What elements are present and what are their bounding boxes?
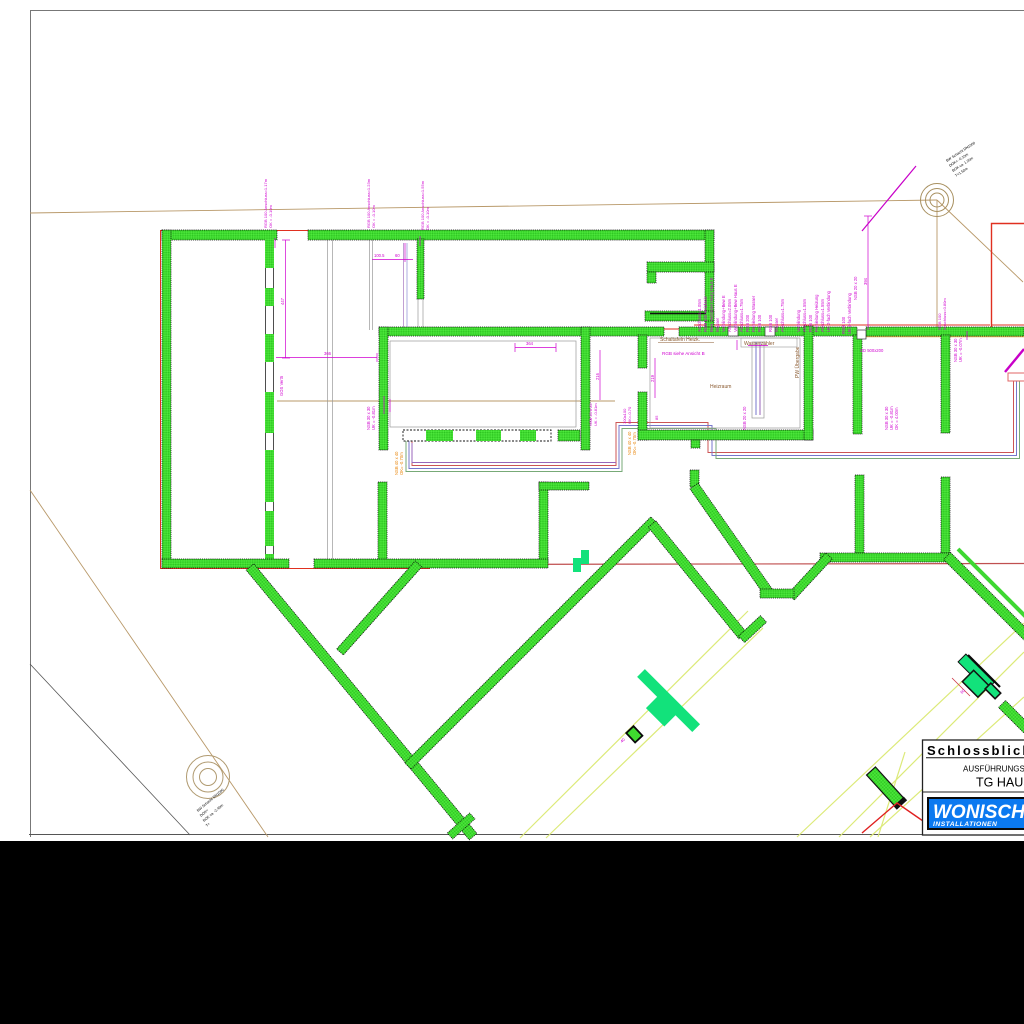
svg-text:NSB 20 x 20: NSB 20 x 20 — [742, 406, 747, 430]
svg-text:Anschluss=1.75m: Anschluss=1.75m — [739, 298, 744, 332]
svg-text:RGB 100: RGB 100 — [757, 314, 762, 332]
svg-text:AUSFÜHRUNGSPLAN: AUSFÜHRUNGSPLAN — [963, 765, 1024, 774]
svg-text:219: 219 — [650, 374, 655, 382]
svg-text:TG HAUS B: TG HAUS B — [976, 776, 1024, 790]
svg-text:Heizraum: Heizraum — [710, 384, 731, 390]
svg-text:Anschluss=1.55m: Anschluss=1.55m — [802, 298, 807, 332]
svg-text:Wasser: Wasser — [715, 317, 720, 332]
svg-text:Wasser: Wasser — [774, 317, 779, 332]
svg-text:WONISCH: WONISCH — [933, 802, 1024, 823]
svg-text:RGB siehe Ansicht B: RGB siehe Ansicht B — [662, 351, 705, 356]
svg-text:DD 500x200: DD 500x200 — [860, 348, 884, 353]
svg-text:UK = -0.81m: UK = -0.81m — [593, 403, 598, 426]
svg-text:NSB 20 x 20: NSB 20 x 20 — [853, 276, 858, 300]
svg-text:RGB 100: RGB 100 — [808, 314, 813, 332]
svg-text:Fernleitung Heizung: Fernleitung Heizung — [814, 294, 819, 332]
svg-text:PW Übergabe: PW Übergabe — [794, 346, 801, 378]
svg-text:100.5: 100.5 — [374, 253, 385, 258]
svg-text:OK= -0.70m: OK= -0.70m — [399, 452, 404, 475]
svg-text:OK=-0.70: OK=-0.70 — [627, 406, 632, 424]
svg-text:364: 364 — [526, 341, 534, 346]
svg-text:OK = -0.10m: OK = -0.10m — [371, 205, 376, 228]
svg-text:85: 85 — [654, 415, 659, 420]
svg-text:OK = 4.00m: OK = 4.00m — [894, 407, 899, 430]
svg-text:RGB 100: RGB 100 — [768, 314, 773, 332]
svg-text:Schaltafeln Heizk.: Schaltafeln Heizk. — [660, 337, 700, 343]
svg-text:RGB 100: RGB 100 — [841, 316, 846, 334]
svg-text:216: 216 — [595, 372, 600, 380]
svg-text:Anschluss=0.80m: Anschluss=0.80m — [942, 298, 947, 330]
svg-text:OK = -0.10m: OK = -0.10m — [268, 205, 273, 228]
svg-text:394: 394 — [863, 277, 868, 285]
svg-text:OK= -0.70m: OK= -0.70m — [632, 432, 637, 455]
svg-text:366: 366 — [324, 351, 332, 356]
svg-text:RGB 100 Heizkreis: RGB 100 Heizkreis — [703, 296, 708, 332]
svg-text:Verblindung+Bew Haus E: Verblindung+Bew Haus E — [733, 284, 738, 332]
svg-text:447: 447 — [280, 297, 285, 305]
svg-text:Anschluss=1.55m: Anschluss=1.55m — [820, 298, 825, 332]
svg-text:RGB 200: RGB 200 — [745, 314, 750, 332]
svg-text:GOS Vert5: GOS Vert5 — [279, 375, 284, 396]
svg-text:Anschluss=2.05m: Anschluss=2.05m — [727, 298, 732, 332]
svg-text:Fernleitung Wasser: Fernleitung Wasser — [751, 295, 756, 332]
svg-text:Schlossblick: Schlossblick — [927, 743, 1024, 758]
svg-text:Verblindung: Verblindung — [796, 309, 801, 332]
svg-text:OK = -0.10m: OK = -0.10m — [425, 207, 430, 230]
svg-text:UK = -0.81m: UK = -0.81m — [371, 406, 376, 430]
svg-text:UK 2-fach Verbindung: UK 2-fach Verbindung — [847, 292, 852, 334]
svg-text:60: 60 — [395, 253, 400, 258]
svg-text:UK = -0.07m: UK = -0.07m — [958, 338, 963, 362]
svg-text:Anschluss=1.75m: Anschluss=1.75m — [780, 298, 785, 332]
svg-text:Bew. Verbindet Heizg Haus E: Bew. Verbindet Heizg Haus E — [709, 277, 714, 332]
svg-text:Anschluss=1.05m: Anschluss=1.05m — [697, 298, 702, 332]
svg-text:Verblindung+Bew E: Verblindung+Bew E — [721, 295, 726, 332]
svg-text:INSTALLATIONEN: INSTALLATIONEN — [933, 821, 997, 828]
svg-text:UK 2-fach Verbindung: UK 2-fach Verbindung — [826, 290, 831, 332]
svg-text:Wasserzähler: Wasserzähler — [744, 341, 775, 347]
